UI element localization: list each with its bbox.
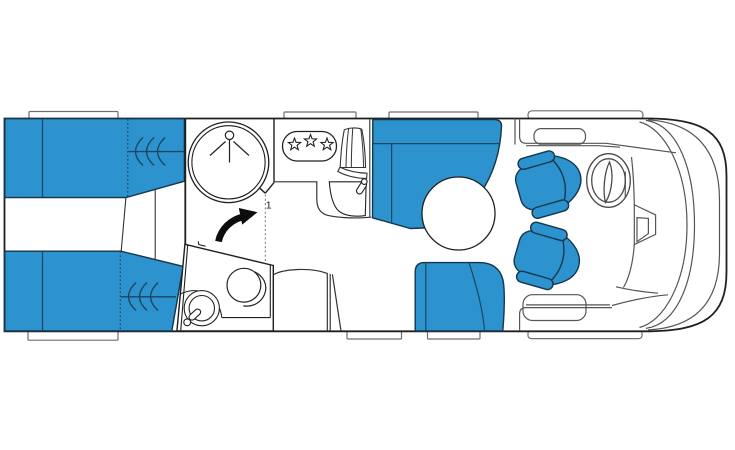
svg-text:1: 1	[266, 199, 272, 211]
